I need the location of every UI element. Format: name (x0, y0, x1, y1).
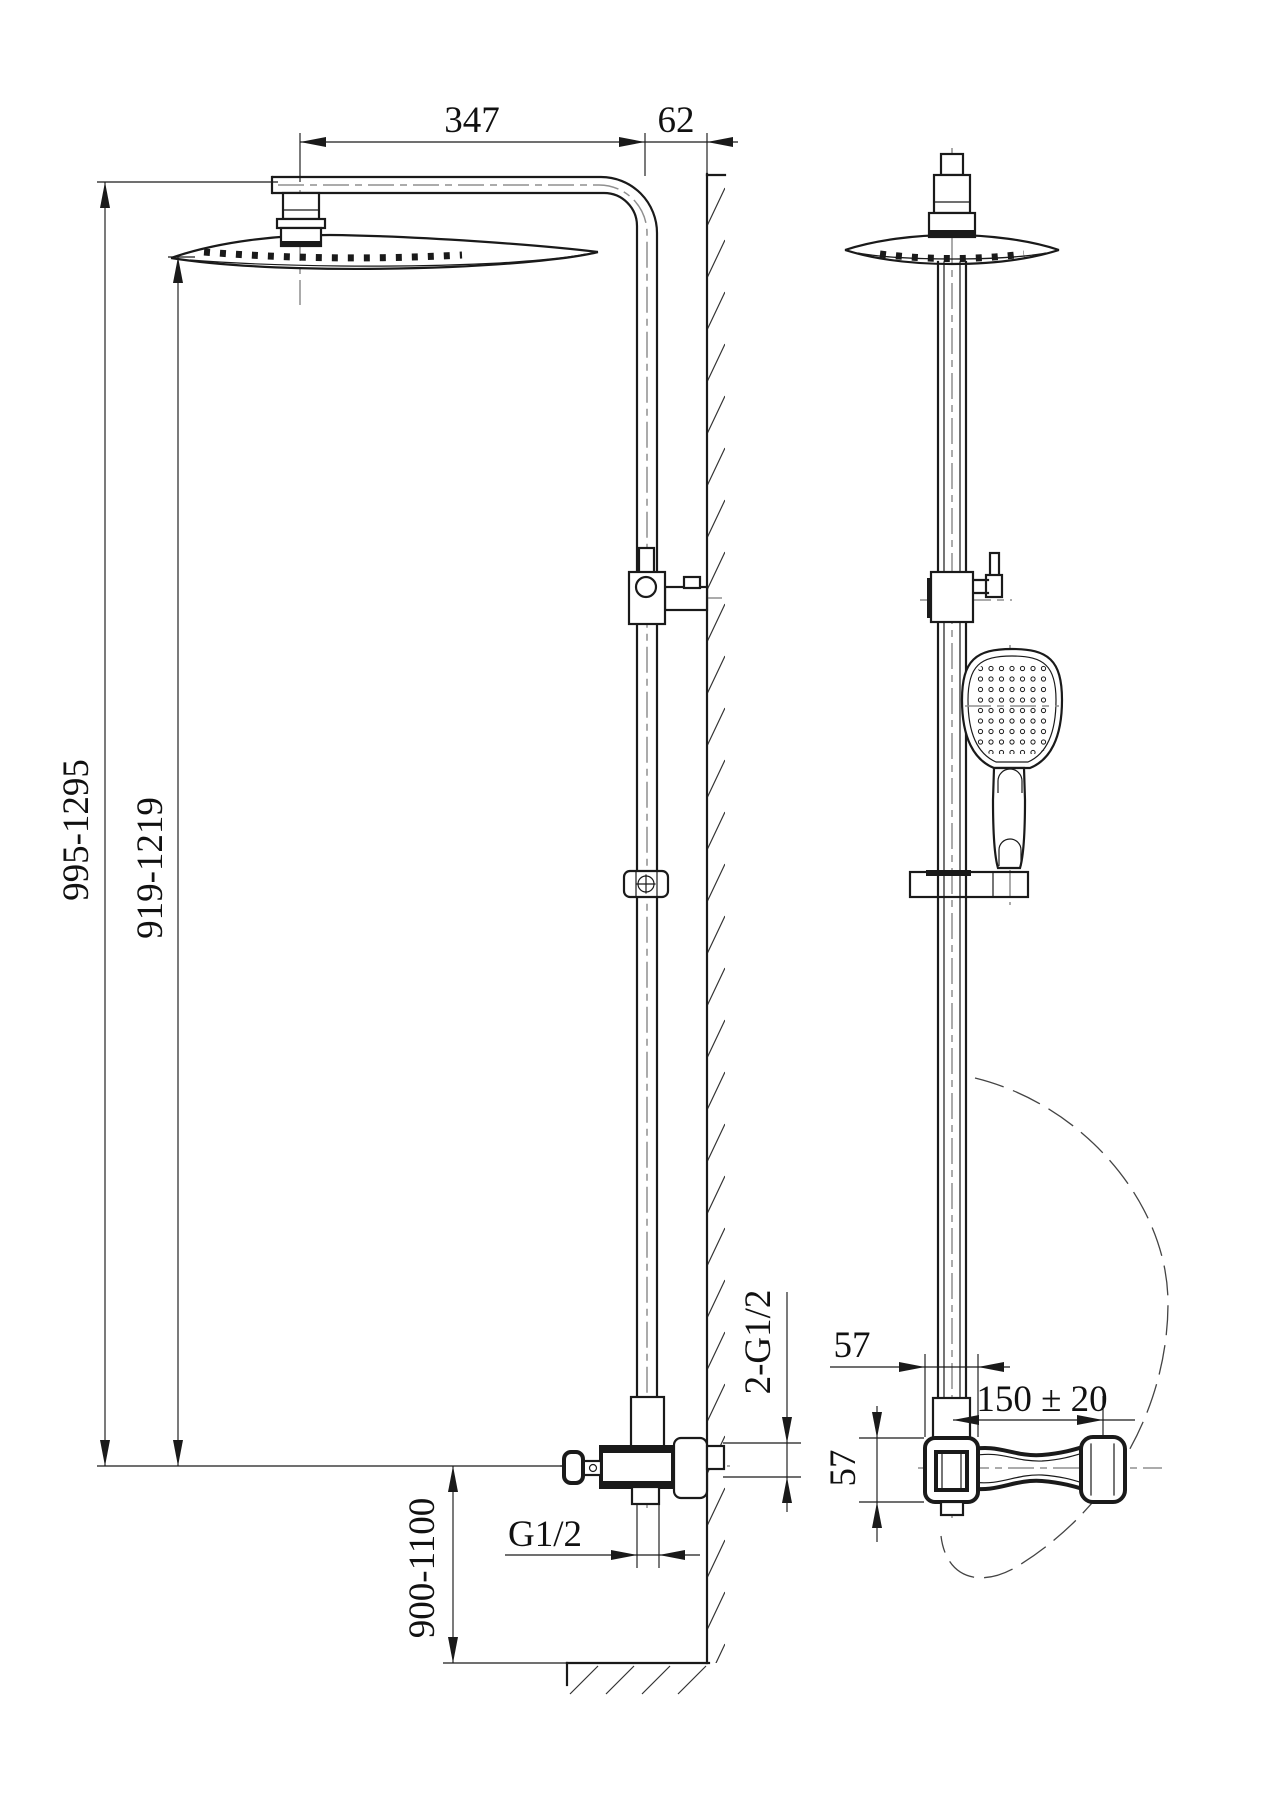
floor-section (567, 1663, 709, 1695)
wall-section (707, 174, 725, 1663)
floor-hatching (569, 1664, 709, 1695)
bracket-knob (636, 577, 656, 597)
hand-shower-nozzles (976, 662, 1050, 754)
dim-label-outlet-thread: G1/2 (508, 1514, 582, 1555)
head-nozzle-dots (204, 252, 462, 258)
riser-pipe-centerline (278, 185, 647, 1508)
head-connector (277, 193, 325, 246)
dim-label-inlet-threads: 2-G1/2 (738, 1290, 779, 1395)
connector-flange (277, 219, 325, 228)
shower-column-installation-drawing: 347 62 995-1295 919-1219 900-1100 G1/2 2… (0, 0, 1273, 1800)
technical-drawing-page: 347 62 995-1295 919-1219 900-1100 G1/2 2… (0, 0, 1273, 1800)
diverter-end-cap (927, 578, 932, 618)
head-rim-line (190, 254, 586, 266)
dimension-lines (105, 142, 1135, 1663)
front-elevation-view (845, 148, 1168, 1578)
mixer-nut (936, 1452, 967, 1490)
outlet-nut (632, 1487, 659, 1504)
handle-knob (564, 1452, 583, 1483)
wall-escutcheon-side (674, 1438, 707, 1498)
diverter-body (931, 572, 973, 622)
bracket-pin (639, 548, 654, 574)
dimensions: 347 62 995-1295 919-1219 900-1100 G1/2 2… (56, 100, 1135, 1663)
dim-label-wall-offset: 62 (658, 100, 695, 141)
dim-label-arm-length: 347 (444, 100, 500, 141)
bracket-wall-plug (684, 577, 700, 588)
connector-nut-front (934, 175, 970, 213)
hand-shower (962, 645, 1062, 905)
dim-label-valve-height: 900-1100 (402, 1498, 443, 1638)
diverter-lever-pin (990, 553, 999, 577)
head-connector-front (929, 154, 975, 237)
pipe-base-connector (631, 1397, 664, 1447)
shower-valve-side (564, 1397, 724, 1504)
rain-shower-head-side (171, 235, 598, 269)
connector-nut (283, 193, 319, 219)
shower-arm (272, 177, 657, 1397)
connector-stub (941, 154, 963, 175)
arm-and-pipe-inner-edge (272, 193, 637, 1397)
shower-hose-loop (941, 1078, 1168, 1578)
wall-supply-nipple (707, 1446, 724, 1469)
arm-and-pipe-outer-edge (272, 177, 657, 1397)
supply-escutcheon-right (1081, 1437, 1125, 1502)
dim-label-overall-height: 995-1295 (56, 759, 97, 901)
bracket-arm (665, 587, 707, 610)
dim-label-supply-spacing: 150 ± 20 (976, 1379, 1107, 1420)
pipe-slider (624, 871, 668, 897)
handle-stem (583, 1461, 601, 1475)
side-elevation-view (171, 177, 730, 1508)
dim-label-valve-height-side: 57 (823, 1450, 864, 1487)
wall-bracket (629, 548, 707, 624)
wall-hatching (707, 174, 725, 1663)
dim-label-head-height: 919-1219 (130, 797, 171, 939)
mixer-outlet-nut (941, 1502, 963, 1515)
dim-label-valve-width: 57 (834, 1325, 871, 1366)
